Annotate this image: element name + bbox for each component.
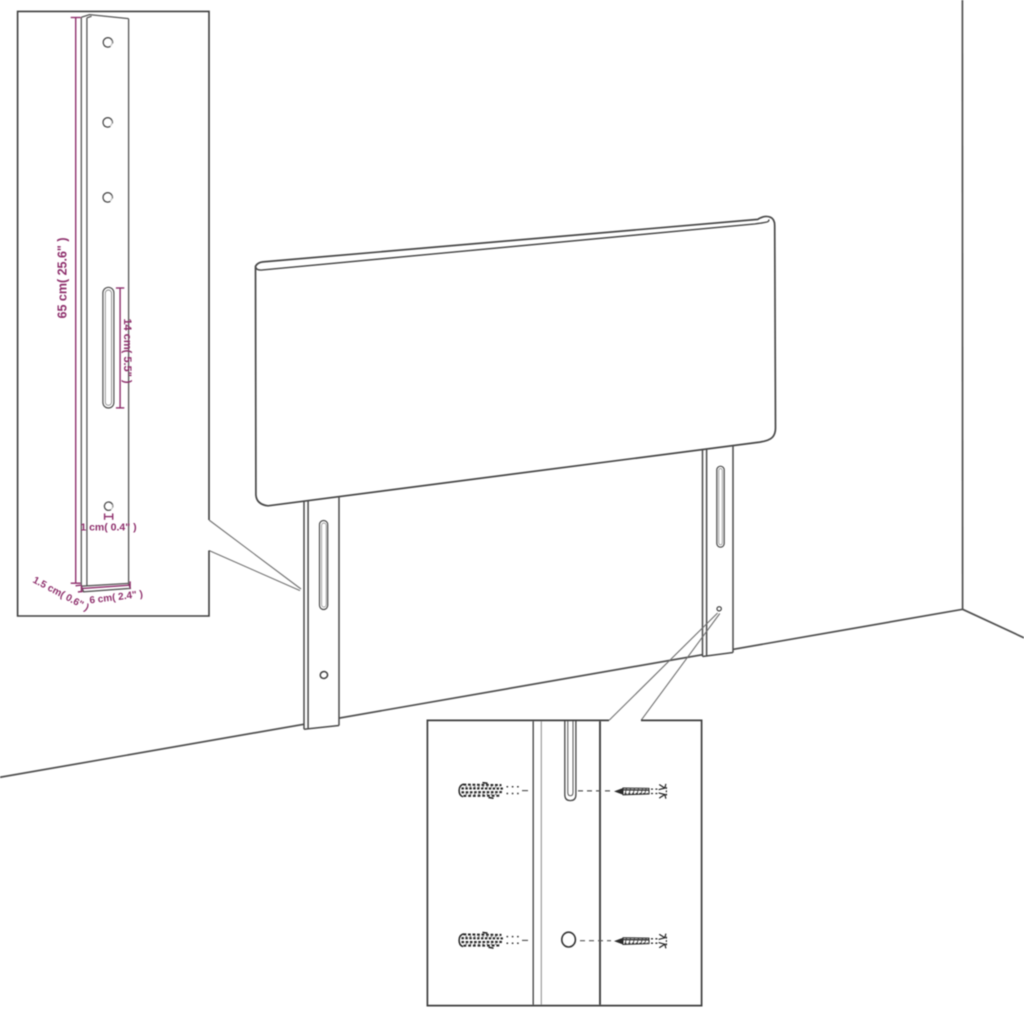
svg-text:65 cm( 25.6" ): 65 cm( 25.6" ) [55, 238, 69, 319]
svg-text:1 cm( 0.4" ): 1 cm( 0.4" ) [80, 522, 136, 534]
svg-text:14 cm( 5.5" ): 14 cm( 5.5" ) [121, 318, 133, 383]
